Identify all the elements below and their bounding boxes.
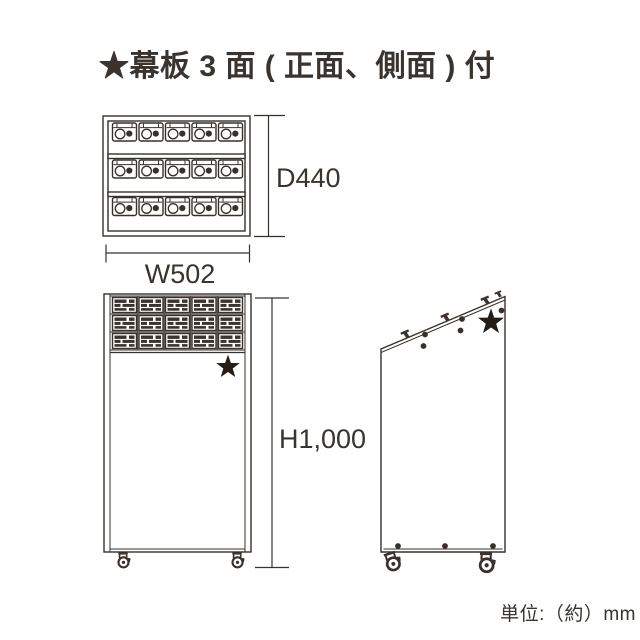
top-view — [103, 116, 250, 236]
top-slot-unit — [192, 123, 216, 141]
diagram-canvas: ★幕板 3 面 ( 正面、側面 ) 付 D440 W502 — [0, 0, 640, 640]
height-dimension-label: H1,000 — [279, 424, 366, 454]
side-view — [381, 290, 505, 572]
top-slot-unit — [139, 198, 163, 216]
caster-icon — [232, 553, 244, 568]
front-slot-unit — [192, 298, 216, 313]
front-slot-unit — [219, 298, 243, 313]
top-slot-unit — [166, 123, 190, 141]
dimension-height: H1,000 — [255, 298, 366, 568]
top-slot-unit — [139, 123, 163, 141]
front-view-slot-grid — [113, 298, 243, 349]
units-note: 単位:（約）mm — [500, 603, 636, 625]
top-view-rail — [108, 154, 245, 159]
front-slot-unit — [139, 298, 163, 313]
front-slot-unit — [113, 298, 137, 313]
screw-dot — [442, 543, 448, 549]
front-slot-unit — [192, 334, 216, 349]
top-slot-unit — [113, 123, 137, 141]
width-dimension-label: W502 — [145, 259, 216, 289]
top-view-rail — [108, 192, 245, 197]
front-slot-unit — [113, 316, 137, 331]
front-slot-unit — [166, 316, 190, 331]
front-slot-unit — [139, 334, 163, 349]
dimension-depth: D440 — [254, 116, 341, 237]
front-slot-unit — [219, 334, 243, 349]
caster-icon — [384, 550, 404, 572]
dimension-width: W502 — [106, 245, 250, 290]
top-view-slot-grid — [113, 123, 243, 216]
front-slot-unit — [139, 316, 163, 331]
top-slot-unit — [139, 160, 163, 178]
top-slot-unit — [166, 198, 190, 216]
screw-dot — [422, 332, 428, 338]
caster-icon — [118, 553, 130, 568]
top-slot-unit — [219, 123, 243, 141]
caster-icon — [480, 553, 496, 572]
top-slot-unit — [219, 198, 243, 216]
top-slot-unit — [192, 160, 216, 178]
page-title: ★幕板 3 面 ( 正面、側面 ) 付 — [99, 50, 495, 83]
front-slot-unit — [113, 334, 137, 349]
front-view-outer-frame — [104, 294, 251, 552]
front-slot-unit — [219, 316, 243, 331]
screw-dot — [421, 343, 427, 349]
top-slot-unit — [113, 198, 137, 216]
front-slot-unit — [166, 334, 190, 349]
screw-dot — [490, 543, 496, 549]
top-slot-unit — [113, 160, 137, 178]
front-slot-unit — [192, 316, 216, 331]
diagram-page: ★幕板 3 面 ( 正面、側面 ) 付 D440 W502 — [0, 0, 640, 640]
screw-dot — [459, 316, 465, 322]
top-slot-unit — [166, 160, 190, 178]
screw-dot — [395, 543, 401, 549]
top-slot-unit — [219, 160, 243, 178]
depth-dimension-label: D440 — [276, 163, 341, 193]
screw-dot — [458, 328, 464, 334]
side-view-body — [381, 297, 505, 553]
front-view — [104, 294, 251, 567]
front-slot-unit — [166, 298, 190, 313]
top-slot-unit — [192, 198, 216, 216]
screw-dot — [499, 308, 505, 314]
